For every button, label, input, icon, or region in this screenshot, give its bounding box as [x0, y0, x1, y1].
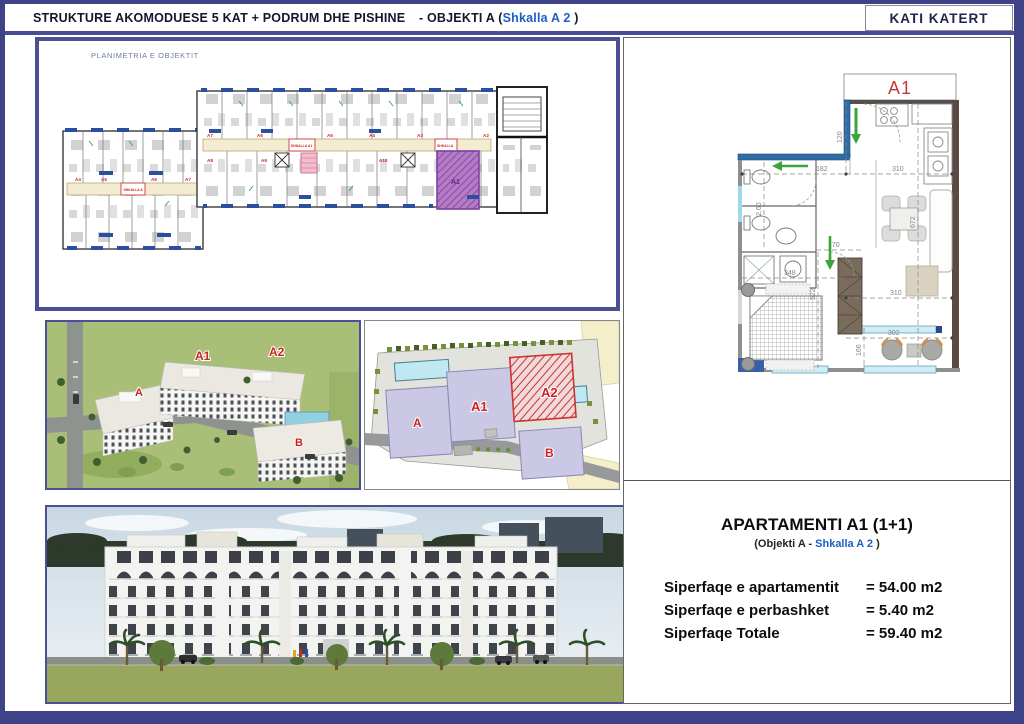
- svg-text:672: 672: [910, 216, 917, 228]
- wardrobe: [838, 258, 862, 334]
- aerial-label-a: A: [135, 387, 143, 399]
- aerial-label-a2: A2: [269, 345, 285, 359]
- unit-label: A8: [207, 158, 213, 163]
- area-rows: Siperfaqe e apartamentit = 54.00 m2 Sipe…: [624, 576, 1010, 645]
- apartment-panel: A1: [623, 37, 1011, 704]
- architectural-sheet: STRUKTURE AKOMODUESE 5 KAT + PODRUM DHE …: [0, 0, 1024, 724]
- svg-text:310: 310: [890, 290, 902, 297]
- coffee-table: [906, 266, 938, 296]
- apartment-unit-label: A1: [888, 78, 912, 98]
- highlight-unit-label: A1: [451, 179, 460, 186]
- site-label-a1: A1: [471, 399, 488, 414]
- site-label-b: B: [545, 446, 554, 460]
- stair-label-right2: SHKALLA: [437, 144, 454, 148]
- site-plan-panel: A A1 A2 B: [364, 320, 620, 490]
- bathroom: [744, 170, 806, 284]
- svg-text:120: 120: [837, 131, 844, 143]
- svg-text:182: 182: [816, 166, 828, 173]
- title-main: STRUKTURE AKOMODUESE 5 KAT + PODRUM DHE …: [33, 11, 405, 25]
- subtitle-pre: (Objekti A -: [754, 538, 815, 550]
- aerial-label-a1: A1: [195, 349, 211, 363]
- sofa: [930, 190, 952, 272]
- stair-label-right: SHKALLA A1: [291, 144, 312, 148]
- area-label: Siperfaqe e apartamentit: [664, 576, 866, 599]
- apartment-details: APARTAMENTI A1 (1+1) (Objekti A - Shkall…: [624, 481, 1010, 703]
- title-objekti: - OBJEKTI A (: [419, 11, 503, 25]
- window-ticks: [203, 204, 433, 208]
- svg-text:348: 348: [784, 270, 796, 277]
- right-wing: SHKALLA A1 SHKALLA A1 A7 A6 A5 A4: [197, 88, 497, 209]
- svg-text:2,60: 2,60: [756, 202, 763, 216]
- floorplan-panel: PLANIMETRIA E OBJEKTIT: [35, 37, 620, 311]
- area-label: Siperfaqe e perbashket: [664, 599, 866, 622]
- unit-label: A6: [257, 133, 263, 138]
- unit-label: A6: [151, 177, 157, 182]
- window-ticks: [201, 88, 493, 92]
- main-building: [105, 532, 557, 659]
- unit-label: A3: [417, 133, 423, 138]
- title-shkalla: Shkalla A 2: [503, 11, 571, 25]
- unit-label: A10: [379, 158, 388, 163]
- people: [293, 649, 308, 657]
- unit-label: A5: [327, 133, 333, 138]
- aerial-label-b: B: [295, 437, 303, 449]
- site-label-a: A: [413, 416, 422, 430]
- area-row-total: Siperfaqe Totale = 59.40 m2: [624, 622, 1010, 645]
- unit-label: A9: [261, 158, 267, 163]
- street-render-panel: [45, 505, 625, 704]
- lawn: [47, 665, 623, 702]
- subtitle-accent: Shkalla A 2: [815, 538, 873, 550]
- dining-set: [882, 196, 926, 241]
- site-plan: A A1 A2 B: [365, 321, 619, 489]
- window-ticks: [67, 246, 201, 250]
- stair-label-left: SHKALLA A: [124, 188, 144, 192]
- area-value: = 59.40 m2: [866, 622, 942, 645]
- subtitle-post: ): [873, 538, 880, 550]
- area-label: Siperfaqe Totale: [664, 622, 866, 645]
- svg-text:166: 166: [856, 344, 863, 356]
- unit-label: A4: [369, 133, 375, 138]
- header: STRUKTURE AKOMODUESE 5 KAT + PODRUM DHE …: [5, 4, 1014, 31]
- svg-text:522: 522: [810, 288, 817, 300]
- floor-label-box: KATI KATERT: [865, 5, 1013, 31]
- apartment-plan: A1: [624, 38, 1010, 480]
- unit-label: A7: [207, 133, 213, 138]
- arched-top-floor: [109, 551, 555, 579]
- area-value: = 5.40 m2: [866, 599, 934, 622]
- unit-label: A7: [185, 177, 191, 182]
- details-subtitle: (Objekti A - Shkalla A 2 ): [624, 538, 1010, 550]
- kitchen: [876, 104, 952, 184]
- highlighted-unit-a1: A1: [437, 151, 479, 209]
- details-title: APARTAMENTI A1 (1+1): [624, 515, 1010, 535]
- window-ticks: [65, 128, 201, 132]
- left-wing: SHKALLA A A4 A5 A6 A7: [63, 128, 203, 250]
- title-close: ): [571, 11, 579, 25]
- balcony: [882, 339, 942, 360]
- svg-text:310: 310: [892, 166, 904, 173]
- unit-label: A2: [483, 133, 489, 138]
- sheet-title: STRUKTURE AKOMODUESE 5 KAT + PODRUM DHE …: [5, 11, 579, 25]
- aerial-render: A A1 A2 B: [47, 322, 359, 488]
- unit-label: A4: [75, 177, 81, 182]
- right-annex: [497, 87, 547, 213]
- site-label-a2: A2: [541, 385, 558, 400]
- header-divider: [5, 31, 1014, 35]
- street-render: [47, 507, 623, 702]
- svg-text:302: 302: [888, 330, 900, 337]
- building-b: [253, 420, 346, 482]
- area-row-apartment: Siperfaqe e apartamentit = 54.00 m2: [624, 576, 1010, 599]
- building-floorplan-drawing: SHKALLA A A4 A5 A6 A7 SHKALLA A1 SHKALLA: [39, 41, 616, 307]
- area-value: = 54.00 m2: [866, 576, 942, 599]
- aerial-render-panel: A A1 A2 B: [45, 320, 361, 490]
- area-row-shared: Siperfaqe e perbashket = 5.40 m2: [624, 599, 1010, 622]
- unit-label: A5: [101, 177, 107, 182]
